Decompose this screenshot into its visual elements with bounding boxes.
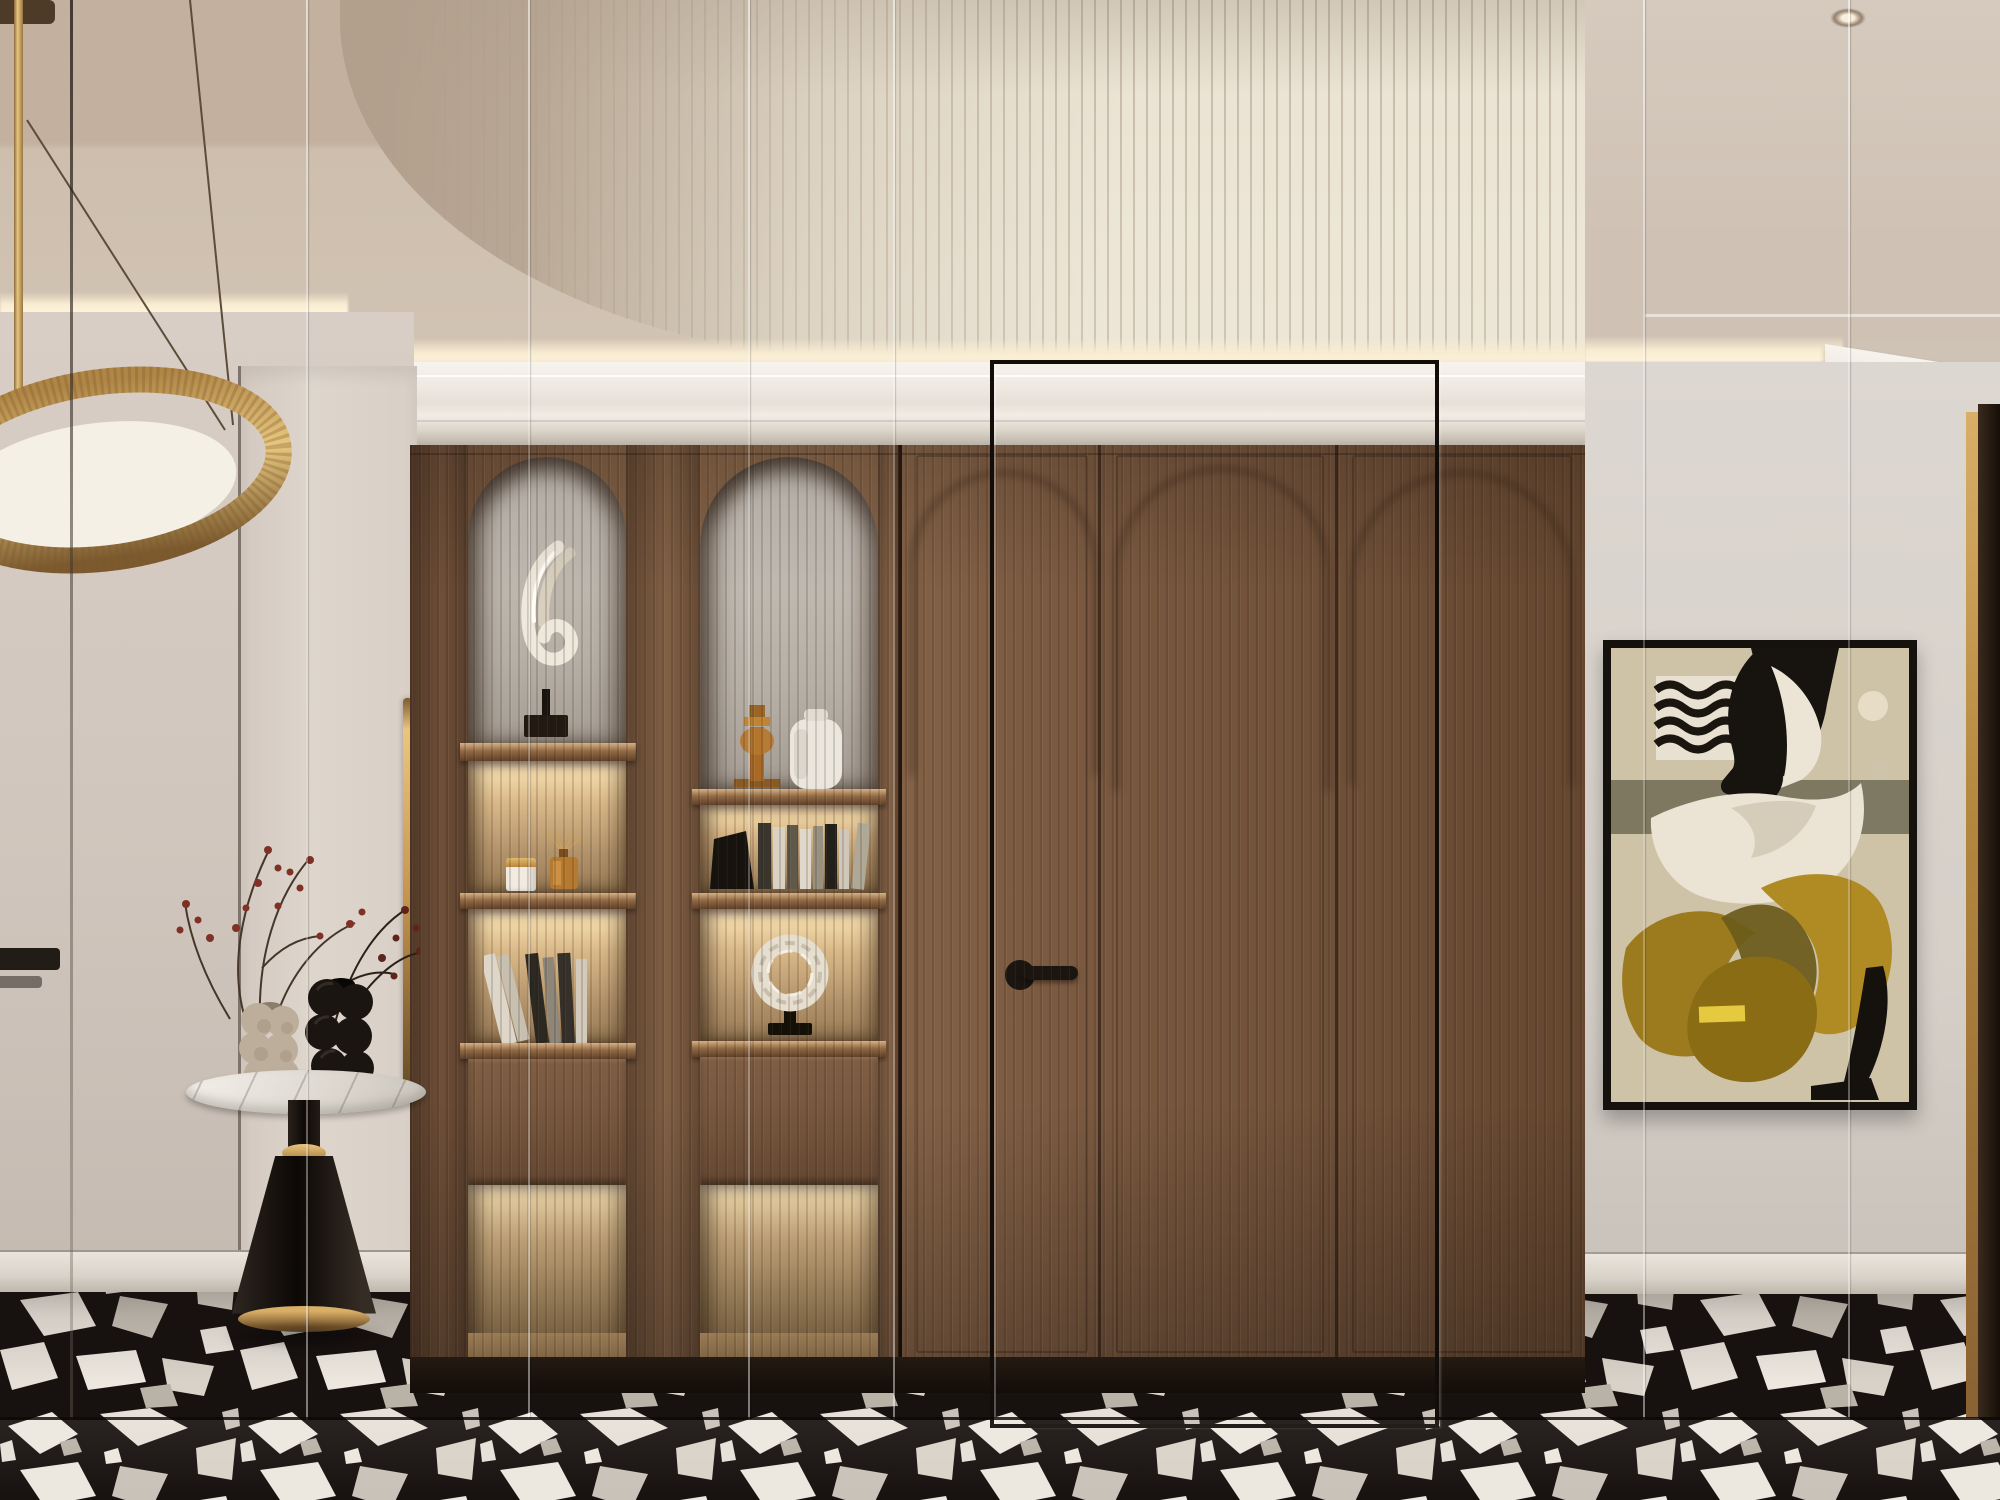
fluted-vault-ceiling bbox=[340, 0, 1585, 362]
floor-reflection-sheen bbox=[0, 1420, 2000, 1500]
framed-glass-panel bbox=[990, 360, 1439, 1428]
swirl-sculpture bbox=[496, 537, 596, 743]
wardrobe-divider bbox=[626, 445, 700, 1357]
abstract-artwork bbox=[1611, 648, 1909, 1102]
dark-doorway bbox=[1978, 404, 2000, 1418]
glass-seam bbox=[70, 0, 73, 1420]
pendant-canopy bbox=[0, 0, 55, 24]
brass-door-trim bbox=[1966, 412, 1978, 1418]
glass-seam bbox=[748, 0, 750, 1420]
abstract-artwork-frame bbox=[1603, 640, 1917, 1110]
backlit-niche-candle bbox=[468, 761, 626, 893]
shelf-board bbox=[460, 893, 636, 909]
shelf-board bbox=[460, 743, 636, 761]
glass-seam bbox=[1848, 0, 1850, 1420]
mirror-horizontal-seam bbox=[1645, 314, 2000, 317]
drawer-front bbox=[700, 1057, 878, 1185]
right-baseboard bbox=[1585, 1252, 2000, 1294]
backlit-base-niche bbox=[700, 1185, 878, 1357]
glass-seam bbox=[528, 0, 530, 1420]
shelf-board bbox=[692, 789, 886, 805]
dried-branches bbox=[150, 788, 420, 1028]
pendant-rod bbox=[14, 0, 23, 398]
reed-diffuser bbox=[542, 829, 588, 891]
candle-gold-lid bbox=[506, 858, 536, 867]
backlit-base-niche bbox=[468, 1185, 626, 1357]
glass-seam bbox=[306, 0, 308, 1420]
door-gap bbox=[898, 445, 902, 1357]
backlit-niche-books bbox=[468, 909, 626, 1043]
backlit-niche-bookrow bbox=[700, 805, 878, 893]
pendant-wire bbox=[190, 0, 233, 425]
left-edge-door-handle-shadow bbox=[0, 976, 42, 988]
shelf-board bbox=[692, 893, 886, 909]
hallway-scene bbox=[0, 0, 2000, 1500]
table-stem bbox=[288, 1100, 320, 1150]
table-floor-shadow bbox=[220, 1322, 390, 1348]
mirror-cove-glow bbox=[1585, 336, 1843, 362]
vault-shading bbox=[340, 0, 1585, 362]
mirror-ceiling-reflection bbox=[1585, 0, 2000, 342]
arched-niche-a bbox=[468, 457, 626, 745]
left-edge-door-handle bbox=[0, 948, 60, 970]
pendant-lamp bbox=[0, 0, 315, 620]
glass-seam bbox=[893, 0, 895, 1420]
glass-seam bbox=[1643, 0, 1645, 1420]
drawer-front bbox=[468, 1059, 626, 1185]
backlit-niche-ring bbox=[700, 909, 878, 1041]
shelf-board bbox=[460, 1043, 636, 1059]
book-row bbox=[706, 809, 874, 893]
leaning-books bbox=[484, 939, 614, 1043]
shelf-board bbox=[692, 1041, 886, 1057]
arched-niche-b bbox=[700, 457, 878, 789]
